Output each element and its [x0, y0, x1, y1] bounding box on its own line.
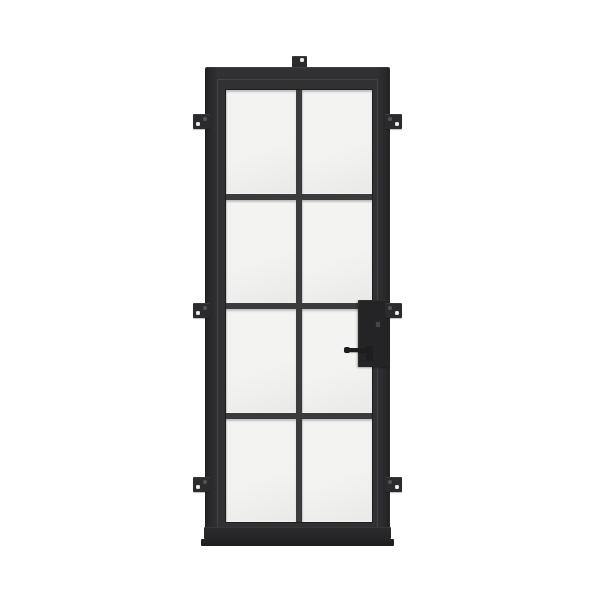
- glass-pane: [226, 90, 296, 194]
- glass-grid: [226, 90, 372, 522]
- tab-hole: [203, 480, 207, 484]
- tab-hole: [203, 306, 207, 310]
- bracket-hole: [300, 58, 304, 62]
- deadbolt-keyhole: [374, 320, 382, 329]
- bottom-sill-lower-step: [201, 539, 394, 546]
- tab-hole: [196, 485, 200, 489]
- tab-hole: [395, 485, 399, 489]
- glass-pane: [302, 90, 372, 194]
- bottom-sill-upper-step: [204, 527, 391, 539]
- tab-hole: [196, 311, 200, 315]
- glass-pane: [302, 419, 372, 523]
- glass-pane: [302, 200, 372, 304]
- tab-hole: [395, 311, 399, 315]
- tab-hole: [388, 117, 392, 121]
- glass-pane: [226, 309, 296, 413]
- tab-hole: [388, 306, 392, 310]
- glass-pane: [226, 200, 296, 304]
- door-frame: [205, 67, 390, 545]
- glass-pane: [226, 419, 296, 523]
- tab-hole: [196, 122, 200, 126]
- tab-hole: [203, 117, 207, 121]
- left-mounting-tab: [193, 303, 210, 318]
- product-image-canvas: [0, 0, 600, 600]
- tab-hole: [388, 480, 392, 484]
- right-mounting-tab: [385, 303, 402, 318]
- right-mounting-tab: [385, 477, 402, 492]
- handle-spindle: [366, 346, 373, 361]
- left-mounting-tab: [193, 477, 210, 492]
- left-mounting-tab: [193, 114, 210, 129]
- tab-hole: [395, 122, 399, 126]
- right-mounting-tab: [385, 114, 402, 129]
